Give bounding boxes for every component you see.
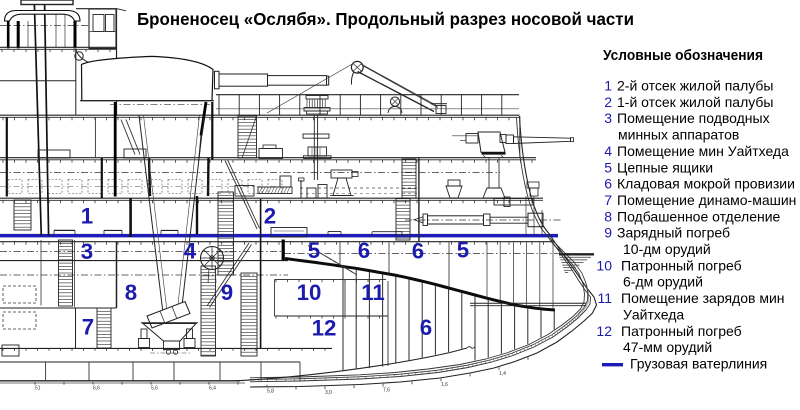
- svg-text:51: 51: [35, 386, 41, 392]
- svg-text:6-дм орудий: 6-дм орудий: [623, 274, 703, 290]
- svg-text:5,6: 5,6: [151, 386, 158, 392]
- svg-text:6: 6: [420, 315, 432, 340]
- svg-text:6: 6: [412, 239, 424, 264]
- svg-text:Кладовая мокрой провизии: Кладовая мокрой провизии: [617, 176, 795, 192]
- svg-text:8: 8: [125, 280, 137, 305]
- svg-text:10: 10: [596, 257, 612, 273]
- svg-text:Помещение мин Уайтхеда: Помещение мин Уайтхеда: [617, 143, 789, 159]
- svg-text:10-дм орудий: 10-дм орудий: [623, 241, 711, 257]
- svg-text:9: 9: [221, 280, 233, 305]
- svg-text:6,4: 6,4: [209, 386, 216, 392]
- svg-text:7,6: 7,6: [383, 387, 390, 393]
- svg-text:7: 7: [82, 315, 94, 340]
- svg-text:3: 3: [81, 239, 93, 264]
- svg-text:Подбашенное отделение: Подбашенное отделение: [617, 208, 781, 224]
- svg-text:5: 5: [457, 238, 469, 263]
- svg-text:47-мм орудий: 47-мм орудий: [623, 339, 712, 355]
- svg-text:7: 7: [604, 192, 612, 208]
- svg-text:1: 1: [604, 78, 612, 94]
- svg-text:2: 2: [264, 204, 276, 229]
- svg-text:5: 5: [604, 159, 612, 175]
- svg-text:3,0: 3,0: [325, 390, 332, 396]
- svg-text:6: 6: [604, 176, 612, 192]
- svg-text:3: 3: [604, 110, 612, 126]
- svg-text:Броненосец «Ослябя». Продольны: Броненосец «Ослябя». Продольный разрез н…: [137, 9, 634, 29]
- svg-text:Зарядный погреб: Зарядный погреб: [617, 225, 730, 241]
- svg-text:Грузовая ватерлиния: Грузовая ватерлиния: [630, 355, 767, 371]
- svg-text:4: 4: [184, 239, 197, 264]
- svg-text:минных аппаратов: минных аппаратов: [618, 127, 739, 143]
- svg-text:11: 11: [361, 280, 385, 305]
- svg-text:10: 10: [297, 280, 322, 305]
- svg-text:6,6: 6,6: [93, 386, 100, 392]
- svg-text:1,6: 1,6: [441, 382, 448, 388]
- svg-text:Помещение зарядов мин: Помещение зарядов мин: [621, 290, 785, 306]
- svg-text:Условные обозначения: Условные обозначения: [603, 47, 763, 64]
- svg-text:1,4: 1,4: [499, 371, 506, 377]
- svg-text:Патронный погреб: Патронный погреб: [621, 323, 742, 339]
- svg-text:2-й отсек жилой палубы: 2-й отсек жилой палубы: [617, 78, 773, 94]
- svg-text:Помещение динамо-машин: Помещение динамо-машин: [617, 192, 796, 208]
- svg-text:4: 4: [604, 143, 612, 159]
- svg-text:Помещение подводных: Помещение подводных: [617, 110, 770, 126]
- svg-text:Уайтхеда: Уайтхеда: [623, 306, 684, 322]
- svg-text:2: 2: [604, 94, 612, 110]
- svg-text:9: 9: [604, 225, 612, 241]
- svg-text:5: 5: [308, 238, 320, 263]
- svg-text:1: 1: [81, 204, 93, 229]
- svg-text:Цепные ящики: Цепные ящики: [617, 159, 713, 175]
- svg-text:12: 12: [596, 323, 612, 339]
- svg-text:Патронный погреб: Патронный погреб: [621, 257, 742, 273]
- svg-text:1-й отсек жилой палубы: 1-й отсек жилой палубы: [617, 94, 773, 110]
- svg-text:6: 6: [358, 238, 370, 263]
- svg-text:8: 8: [604, 208, 612, 224]
- svg-text:5,8: 5,8: [267, 388, 274, 394]
- svg-text:12: 12: [312, 316, 337, 341]
- svg-text:11: 11: [597, 290, 612, 306]
